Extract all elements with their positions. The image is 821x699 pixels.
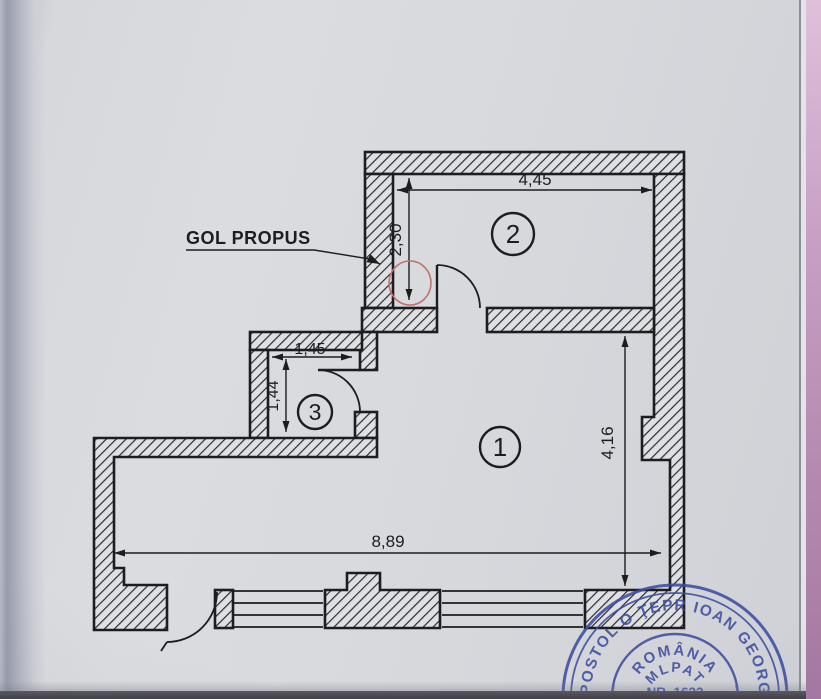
dim-room3-depth: 1,44 [265,380,282,411]
background-pink-strip [806,0,821,699]
wall-room3-right-foot [355,412,377,438]
paper-bottom-shadow [0,681,806,691]
gol-propus-label: GOL PROPUS [186,228,311,248]
wall-bottom-middle [325,573,440,628]
table-edge-strip [0,691,806,699]
dim-room1-width: 8,89 [371,532,404,551]
dimension-labels: 4,45 2,30 1,45 1,44 4,16 8,89 [265,170,617,551]
room1-number: 1 [493,432,507,462]
photographed-floor-plan: 4,45 2,30 1,45 1,44 4,16 8,89 1 2 3 GOL … [0,0,821,699]
wall-room2-bottom-left [362,308,437,332]
dim-room3-width: 1,45 [294,341,325,358]
floor-plan-drawing: 4,45 2,30 1,45 1,44 4,16 8,89 1 2 3 GOL … [0,0,821,699]
dim-room1-depth: 4,16 [598,426,617,459]
door-room2-swing [437,265,480,308]
wall-right [585,174,684,628]
room3-number: 3 [309,399,322,425]
dim-room2-width: 4,45 [518,170,551,189]
gol-propus-leader-line [186,250,380,264]
page-left-shadow [0,0,46,699]
room2-number: 2 [506,219,520,249]
door-entry-swing [167,592,217,642]
dim-gol-offset: 2,30 [386,223,405,256]
wall-room2-bottom-right [487,308,654,332]
gol-propus-marker-circle [389,261,431,305]
door-entry-leaf [161,642,167,651]
door-room3-swing [318,370,360,412]
